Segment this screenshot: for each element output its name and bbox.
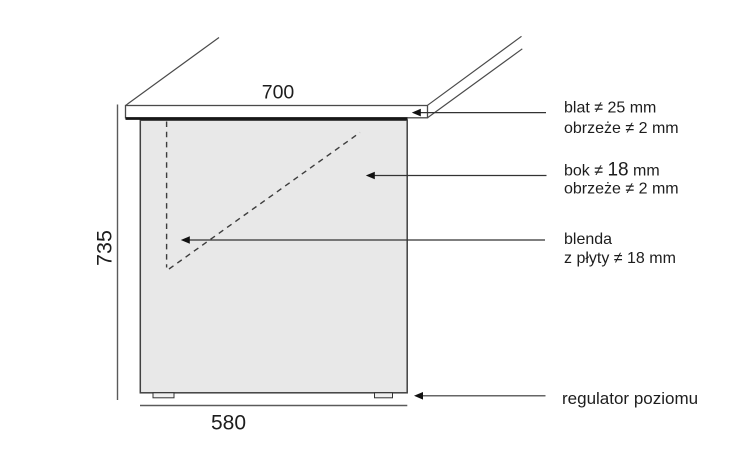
svg-text:580: 580 [211, 412, 246, 435]
svg-text:blat ≠ 25 mm: blat ≠ 25 mm [564, 100, 656, 117]
svg-text:blenda: blenda [564, 231, 612, 248]
svg-text:regulator poziomu: regulator poziomu [562, 389, 698, 408]
svg-text:z płyty ≠ 18 mm: z płyty ≠ 18 mm [564, 250, 676, 267]
svg-text:bok ≠ 18 mm: bok ≠ 18 mm [564, 159, 660, 180]
svg-text:700: 700 [262, 81, 295, 103]
svg-text:735: 735 [93, 230, 117, 266]
svg-text:obrzeże ≠ 2 mm: obrzeże ≠ 2 mm [564, 181, 679, 198]
svg-text:obrzeże ≠ 2 mm: obrzeże ≠ 2 mm [564, 120, 679, 137]
